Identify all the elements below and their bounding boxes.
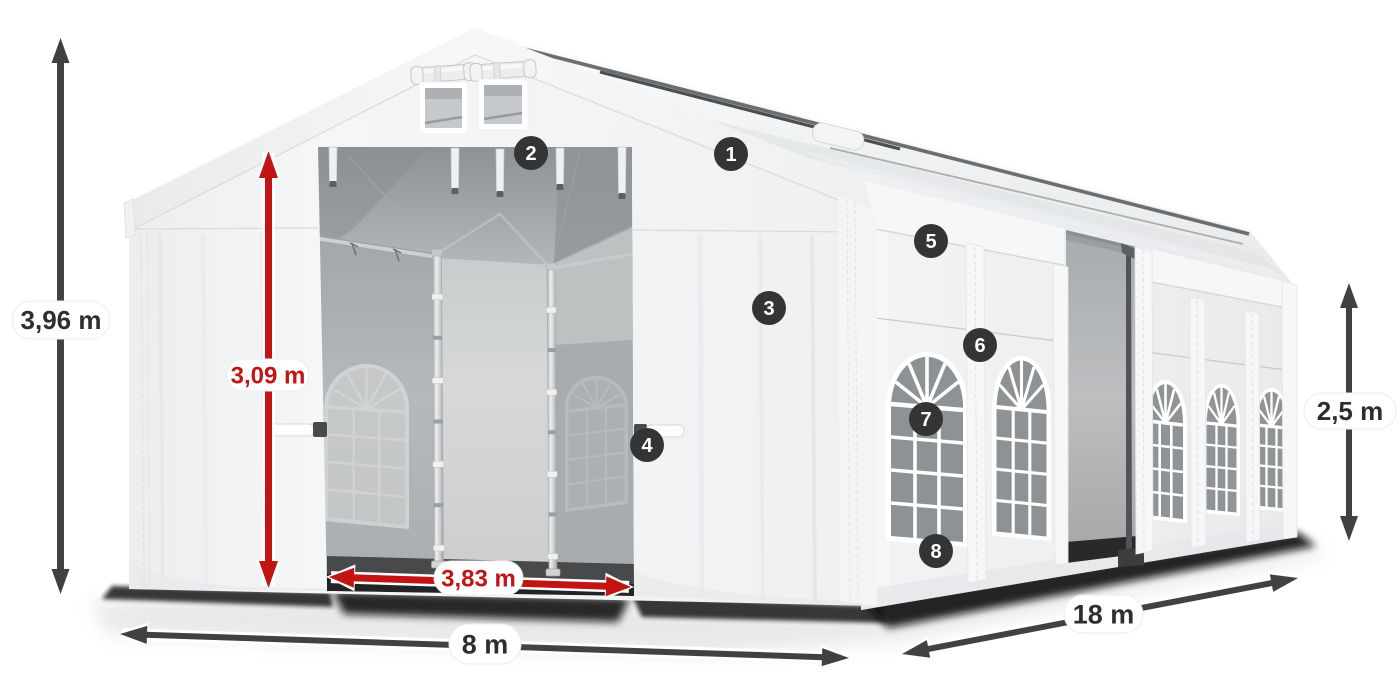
svg-text:3,09 m: 3,09 m xyxy=(231,362,306,389)
svg-text:7: 7 xyxy=(920,409,931,431)
svg-text:8 m: 8 m xyxy=(462,629,509,659)
svg-text:6: 6 xyxy=(974,335,985,357)
svg-text:4: 4 xyxy=(641,435,653,457)
svg-text:8: 8 xyxy=(930,541,941,563)
svg-text:3: 3 xyxy=(763,298,774,320)
svg-text:5: 5 xyxy=(925,231,936,253)
svg-text:2,5 m: 2,5 m xyxy=(1317,396,1384,426)
svg-text:2: 2 xyxy=(525,143,536,165)
svg-text:1: 1 xyxy=(725,144,736,166)
svg-text:3,96 m: 3,96 m xyxy=(21,305,102,335)
svg-text:3,83 m: 3,83 m xyxy=(441,565,516,592)
svg-text:18 m: 18 m xyxy=(1073,599,1135,629)
